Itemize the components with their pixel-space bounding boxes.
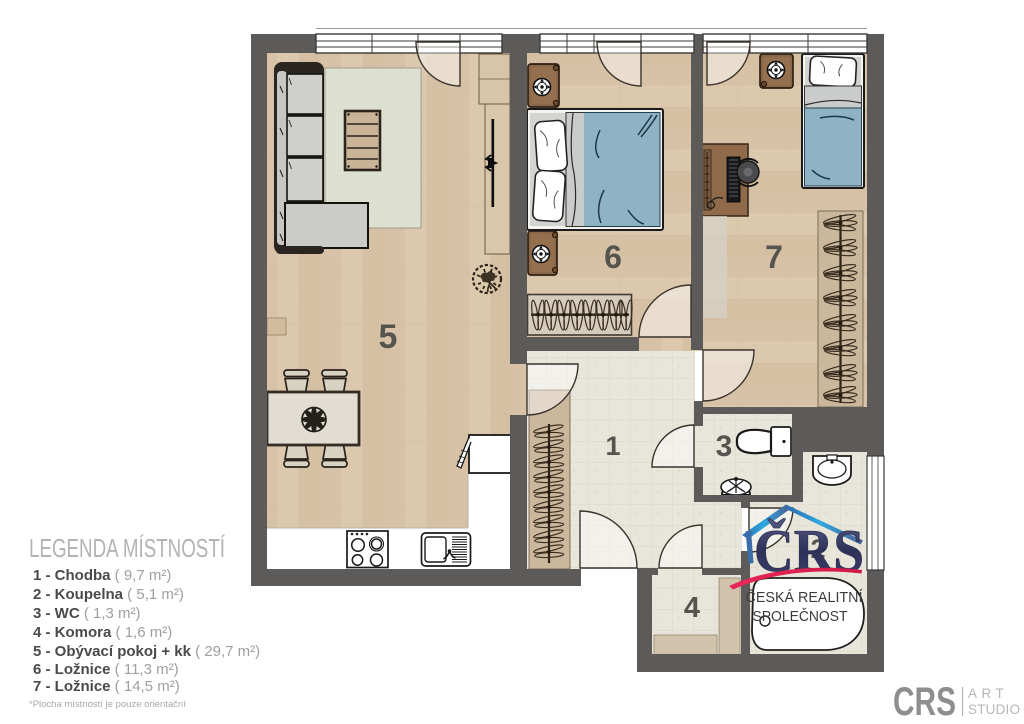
svg-text:2 - Koupelna ( 5,1 m²): 2 - Koupelna ( 5,1 m²): [33, 586, 184, 603]
svg-text:*Plocha místností je pouze ori: *Plocha místností je pouze orientační: [29, 699, 186, 710]
svg-text:CRS: CRS: [893, 680, 956, 724]
svg-text:5: 5: [379, 318, 398, 356]
svg-text:4 - Komora ( 1,6 m²): 4 - Komora ( 1,6 m²): [33, 624, 172, 641]
svg-text:STUDIO: STUDIO: [968, 702, 1020, 717]
svg-text:7: 7: [765, 239, 783, 275]
svg-text:6 - Ložnice ( 11,3 m²): 6 - Ložnice ( 11,3 m²): [33, 661, 179, 678]
svg-text:7 - Ložnice ( 14,5 m²): 7 - Ložnice ( 14,5 m²): [33, 678, 180, 695]
svg-text:4: 4: [684, 592, 700, 624]
svg-text:6: 6: [604, 239, 622, 275]
svg-text:1 - Chodba ( 9,7 m²): 1 - Chodba ( 9,7 m²): [33, 567, 171, 584]
svg-text:1: 1: [605, 431, 620, 461]
svg-text:LEGENDA MÍSTNOSTÍ: LEGENDA MÍSTNOSTÍ: [29, 533, 226, 563]
svg-text:3 - WC ( 1,3 m²): 3 - WC ( 1,3 m²): [33, 605, 141, 622]
svg-text:SPOLEČNOST: SPOLEČNOST: [753, 608, 848, 625]
svg-text:3: 3: [716, 430, 733, 463]
svg-text:ČESKÁ REALITNÍ: ČESKÁ REALITNÍ: [746, 589, 864, 606]
svg-text:ART: ART: [968, 686, 1008, 701]
svg-text:5 - Obývací pokoj + kk ( 29,7: 5 - Obývací pokoj + kk ( 29,7 m²): [33, 643, 260, 660]
